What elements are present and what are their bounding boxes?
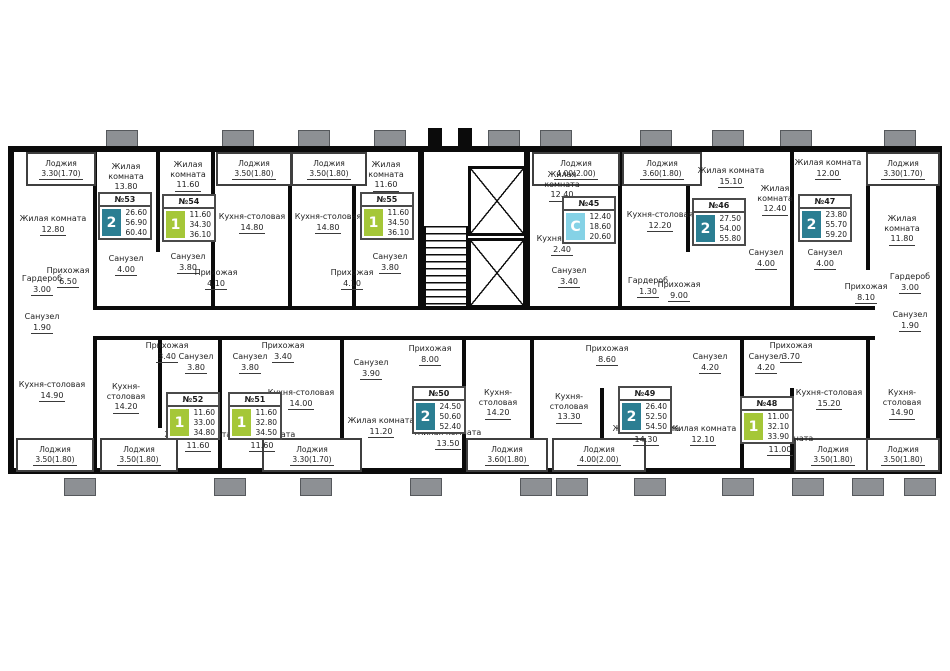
core-wall-stub [458, 128, 472, 148]
room-label: Жилая комната11.80 [870, 214, 934, 246]
room-label: Прихожая3.70 [764, 341, 818, 363]
elevator-shaft [468, 238, 526, 308]
room-area: 3.30(1.70) [290, 455, 333, 466]
apartment-plate[interactable]: №47 2 23.8055.7059.20 [798, 194, 852, 242]
area-no-loggia: 34.50 [385, 218, 409, 228]
room-label: Жилая комната12.10 [668, 424, 738, 446]
room-name: Лоджия [123, 445, 155, 454]
area-no-loggia: 55.70 [823, 220, 847, 230]
area-no-loggia: 32.80 [253, 418, 277, 428]
area-living: 11.00 [765, 412, 789, 422]
apartment-number: №46 [694, 200, 744, 213]
room-area: 4.00(2.00) [577, 455, 620, 466]
room-count-badge: 1 [364, 209, 383, 236]
apartment-areas: 11.0032.1033.90 [765, 411, 792, 442]
area-no-loggia: 52.50 [643, 412, 667, 422]
room-label: Санузел1.90 [16, 312, 68, 334]
apartment-number: №49 [620, 388, 670, 401]
balcony-divider-block [634, 478, 666, 496]
room-area: 3.50(1.80) [811, 455, 854, 466]
area-living: 27.50 [717, 214, 741, 224]
balcony-divider-block [852, 478, 884, 496]
room-name: Лоджия [887, 445, 919, 454]
corridor-wall [93, 336, 875, 340]
area-total: 36.10 [187, 230, 211, 240]
apartment-plate[interactable]: №53 2 26.6056.9060.40 [98, 192, 152, 240]
room-count-badge: 2 [102, 209, 121, 236]
area-living: 12.40 [587, 212, 611, 222]
room-name: Лоджия [560, 159, 592, 168]
room-area: 3.30(1.70) [881, 169, 924, 180]
apartment-plate[interactable]: №49 2 26.4052.5054.50 [618, 386, 672, 434]
balcony-divider-block [64, 478, 96, 496]
area-no-loggia: 34.30 [187, 220, 211, 230]
apartment-plate[interactable]: №51 1 11.6032.8034.50 [228, 392, 282, 440]
room-area: 3.60(1.80) [640, 169, 683, 180]
balcony-divider-block [300, 478, 332, 496]
room-label: Санузел3.80 [226, 352, 274, 374]
room-label: Прихожая4.10 [192, 268, 240, 290]
room-label: Кухня-столовая14.20 [96, 382, 156, 414]
room-label: Санузел4.20 [686, 352, 734, 374]
area-living: 11.60 [191, 408, 215, 418]
area-total: 52.40 [437, 422, 461, 432]
room-label: Кухня-столовая15.20 [794, 388, 864, 410]
balcony-divider-block [214, 478, 246, 496]
room-area: 3.50(1.80) [232, 169, 275, 180]
apartment-plate[interactable]: №55 1 11.6034.5036.10 [360, 192, 414, 240]
room-label: Прихожая6.50 [44, 266, 92, 288]
room-label: Жилая комната11.60 [160, 160, 216, 192]
apartment-plate[interactable]: №46 2 27.5054.0055.80 [692, 198, 746, 246]
room-label: Прихожая8.60 [576, 344, 638, 366]
room-label: Жилая комната13.80 [96, 162, 156, 194]
apartment-number: №53 [100, 194, 150, 207]
apartment-plate[interactable]: №45 С 12.4018.6020.60 [562, 196, 616, 244]
apartment-plate[interactable]: №54 1 11.6034.3036.10 [162, 194, 216, 242]
balcony-divider-block [722, 478, 754, 496]
balcony-divider-block [792, 478, 824, 496]
loggia-box: Лоджия3.30(1.70) [866, 152, 940, 186]
area-living: 11.60 [385, 208, 409, 218]
apartment-number: №48 [742, 398, 792, 411]
room-label: Санузел3.90 [346, 358, 396, 380]
apartment-plate[interactable]: №48 1 11.0032.1033.90 [740, 396, 794, 444]
loggia-box: Лоджия3.50(1.80) [866, 438, 940, 472]
area-total: 59.20 [823, 230, 847, 240]
apartment-areas: 11.6034.5036.10 [385, 207, 412, 238]
room-label: Гардероб1.30 [622, 276, 674, 298]
room-label: Кухня-столовая14.80 [214, 212, 290, 234]
area-living: 11.60 [187, 210, 211, 220]
balcony-divider-block [410, 478, 442, 496]
staircase [424, 226, 468, 306]
core-wall-stub [428, 128, 442, 148]
area-total: 20.60 [587, 232, 611, 242]
room-count-badge: 2 [802, 211, 821, 238]
area-no-loggia: 50.60 [437, 412, 461, 422]
apartment-number: №50 [414, 388, 464, 401]
room-label: Кухня-столовая13.30 [538, 392, 600, 424]
area-total: 36.10 [385, 228, 409, 238]
area-total: 60.40 [123, 228, 147, 238]
room-name: Лоджия [39, 445, 71, 454]
room-area: 3.50(1.80) [307, 169, 350, 180]
room-name: Лоджия [45, 159, 77, 168]
room-label: Кухня-столовая14.20 [468, 388, 528, 420]
room-area: 3.30(1.70) [39, 169, 82, 180]
area-no-loggia: 32.10 [765, 422, 789, 432]
apartment-number: №52 [168, 394, 218, 407]
room-label: Кухня-столовая12.20 [622, 210, 698, 232]
room-label: Жилая комната12.80 [16, 214, 90, 236]
apartment-areas: 24.5050.6052.40 [437, 401, 464, 432]
area-living: 24.50 [437, 402, 461, 412]
room-name: Лоджия [887, 159, 919, 168]
room-area: 3.50(1.80) [881, 455, 924, 466]
room-name: Лоджия [238, 159, 270, 168]
room-label: Кухня-столовая14.90 [870, 388, 934, 420]
apartment-number: №47 [800, 196, 850, 209]
room-label: Санузел3.80 [366, 252, 414, 274]
outer-wall-right [936, 146, 942, 474]
room-label: Кухня-столовая14.80 [290, 212, 366, 234]
outer-wall-top [8, 146, 942, 152]
room-label: Санузел4.00 [800, 248, 850, 270]
room-label: Жилая комната11.20 [344, 416, 418, 438]
apartment-plate[interactable]: №50 2 24.5050.6052.40 [412, 386, 466, 434]
room-area: 3.50(1.80) [117, 455, 160, 466]
area-no-loggia: 33.00 [191, 418, 215, 428]
room-label: Санузел3.80 [172, 352, 220, 374]
apartment-number: №54 [164, 196, 214, 209]
room-count-badge: 2 [416, 403, 435, 430]
room-label: Санузел3.40 [544, 266, 594, 288]
area-total: 55.80 [717, 234, 741, 244]
area-no-loggia: 54.00 [717, 224, 741, 234]
area-total: 33.90 [765, 432, 789, 442]
area-living: 26.40 [643, 402, 667, 412]
loggia-box: Лоджия3.30(1.70) [26, 152, 96, 186]
room-label: Прихожая8.00 [400, 344, 460, 366]
apartment-number: №45 [564, 198, 614, 211]
room-name: Лоджия [313, 159, 345, 168]
balcony-divider-block [556, 478, 588, 496]
room-label: Санузел1.90 [884, 310, 936, 332]
room-count-badge: 2 [696, 215, 715, 242]
area-living: 11.60 [253, 408, 277, 418]
area-total: 34.50 [253, 428, 277, 438]
apartment-areas: 11.6034.3036.10 [187, 209, 214, 240]
outer-wall-left [8, 146, 14, 474]
apartment-areas: 23.8055.7059.20 [823, 209, 850, 240]
room-label: Гардероб3.00 [884, 272, 936, 294]
loggia-box: Лоджия3.50(1.80) [291, 152, 367, 186]
room-label: Жилая комната11.60 [358, 160, 414, 192]
room-label: Санузел4.00 [744, 248, 788, 270]
room-name: Лоджия [491, 445, 523, 454]
apartment-areas: 12.4018.6020.60 [587, 211, 614, 242]
apartment-areas: 26.6056.9060.40 [123, 207, 150, 238]
area-no-loggia: 18.60 [587, 222, 611, 232]
room-label: Кухня-столовая14.90 [12, 380, 92, 402]
room-area: 3.50(1.80) [33, 455, 76, 466]
room-area: 3.60(1.80) [485, 455, 528, 466]
room-count-badge: 2 [622, 403, 641, 430]
room-name: Лоджия [646, 159, 678, 168]
apartment-number: №51 [230, 394, 280, 407]
area-living: 26.60 [123, 208, 147, 218]
room-count-badge: 1 [232, 409, 251, 436]
floor-plan: Лоджия3.30(1.70) Лоджия3.50(1.80) Лоджия… [0, 0, 950, 671]
room-count-badge: 1 [744, 413, 763, 440]
room-count-badge: С [566, 213, 585, 240]
balcony-divider-block [904, 478, 936, 496]
elevator-shaft [468, 166, 526, 236]
room-name: Лоджия [817, 445, 849, 454]
loggia-box: Лоджия3.50(1.80) [16, 438, 94, 472]
loggia-box: Лоджия3.50(1.80) [216, 152, 292, 186]
balcony-divider-block [520, 478, 552, 496]
room-count-badge: 1 [170, 409, 189, 436]
area-total: 34.80 [191, 428, 215, 438]
room-name: Лоджия [296, 445, 328, 454]
room-label: Санузел4.00 [100, 254, 152, 276]
apartment-areas: 26.4052.5054.50 [643, 401, 670, 432]
apartment-plate[interactable]: №52 1 11.6033.0034.80 [166, 392, 220, 440]
apartment-number: №55 [362, 194, 412, 207]
area-total: 54.50 [643, 422, 667, 432]
area-no-loggia: 56.90 [123, 218, 147, 228]
area-living: 23.80 [823, 210, 847, 220]
room-label: Жилая комната12.00 [794, 158, 862, 180]
room-label: Жилая комната12.40 [746, 184, 804, 216]
apartment-areas: 11.6032.8034.50 [253, 407, 280, 438]
room-count-badge: 1 [166, 211, 185, 238]
apartment-areas: 27.5054.0055.80 [717, 213, 744, 244]
apartment-areas: 11.6033.0034.80 [191, 407, 218, 438]
